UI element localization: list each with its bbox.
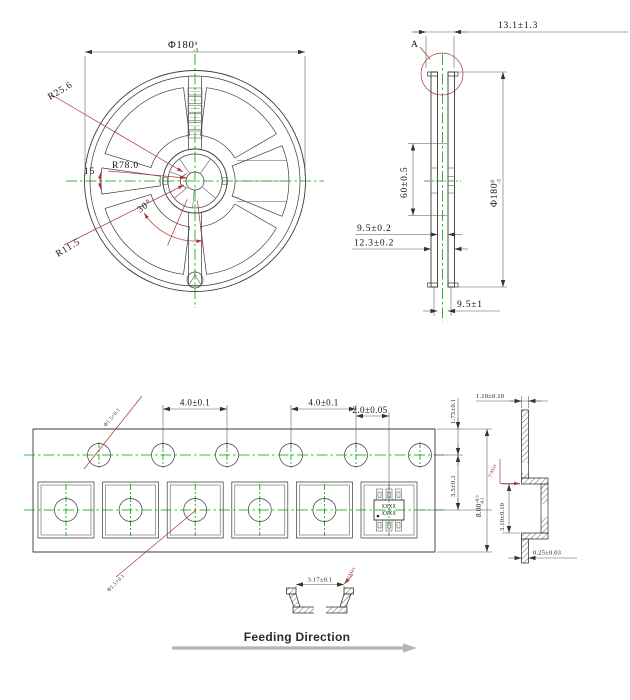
drawing-page: Φ1800-3 R25.6 R78.0 R11.5 15 30°: [0, 0, 630, 700]
reel-flange-right: [448, 72, 455, 287]
pitch-label-b: 4.0±0.1: [308, 398, 338, 408]
hole-to-pocket-label: 2.0±0.05: [352, 405, 387, 415]
feeding-arrow-head: [403, 643, 417, 653]
dim-opening-width: 3.17±0.1: [296, 577, 344, 593]
detail-callout-a: A: [411, 40, 463, 95]
tape-side-section: 1.10±0.10 3.10±0.10 3°Max 0.25±0.03: [476, 393, 577, 563]
pocket-cross-section: 3.17±0.1 3°Max: [287, 566, 358, 614]
inner-gap-label: 9.5±0.2: [357, 224, 392, 234]
overall-width-label: 13.1±1.3: [498, 21, 538, 31]
draft-angle-side-label: 3°Max: [488, 463, 498, 479]
feeding-direction: Feeding Direction: [172, 630, 417, 653]
r78-0-label: R78.0: [112, 161, 139, 171]
reel-side-view: A 13.1±1.3 Φ1800-3 60±0.5 9.5±0.2: [352, 21, 628, 322]
dim-bottom-gap: 9.5±1: [423, 300, 500, 311]
opening-width-label: 3.17±0.1: [308, 577, 333, 584]
angle-15-label: 15: [84, 167, 95, 177]
dim-right-side: 1.75±0.1 3.5±0.1 8.00+0.3-0.1: [420, 398, 492, 552]
tape-width-label: 8.00+0.3-0.1: [475, 495, 485, 517]
tape-top-view: XXXX XXXX 4.0±0.1 4.0±0.1: [24, 396, 492, 593]
r11-5-label: R11.5: [54, 237, 82, 259]
dim-tape-thickness: 0.25±0.03: [508, 550, 577, 559]
dim-pocket-pitch: 4.0±0.1 4.0±0.1: [163, 398, 356, 451]
reel-flange-left: [431, 72, 438, 287]
leader-sprocket-dia: Φ1.5+0.1: [84, 396, 142, 469]
dim-outer-width: 12.3±0.2: [352, 239, 468, 250]
pin1-dot: [377, 515, 380, 518]
reel-front-view: Φ1800-3 R25.6 R78.0 R11.5 15 30°: [46, 40, 324, 308]
reel-diameter-label: Φ1800-3: [168, 40, 198, 54]
pocket-hole-dia-label: Φ1.5+0.1: [106, 573, 126, 593]
draft-angle-pocket-label: 3°Max: [346, 566, 357, 582]
dim-draft-angle-pocket: 3°Max: [344, 566, 357, 584]
hub-width-label: 60±0.5: [400, 167, 410, 198]
carrier-width-label: 1.10±0.10: [476, 393, 504, 400]
tape-outline: [33, 429, 435, 552]
r25-6-label: R25.6: [46, 80, 74, 102]
outer-width-label: 12.3±0.2: [354, 239, 394, 249]
dim-side-diameter: Φ1800-3: [458, 72, 507, 287]
side-diameter-label: Φ1800-3: [490, 179, 503, 207]
edge-to-hole-label: 1.75±0.1: [450, 399, 457, 424]
dim-hub-width: 60±0.5: [400, 144, 447, 216]
angle-30-label: 30°: [135, 197, 154, 215]
dim-inner-gap: 9.5±0.2: [355, 224, 462, 235]
tape-reel-drawing: Φ1800-3 R25.6 R78.0 R11.5 15 30°: [0, 0, 630, 700]
hole-to-pocket-v-label: 3.5±0.1: [450, 475, 457, 497]
dim-angle-15: 15: [84, 167, 101, 189]
leader-r11-5: R11.5: [54, 185, 184, 260]
dim-overall-width: 13.1±1.3: [412, 21, 628, 68]
dim-hole-to-pocket: 2.0±0.05: [352, 405, 389, 497]
tape-thickness-label: 0.25±0.03: [533, 550, 561, 557]
leader-r25-6: R25.6: [46, 80, 183, 172]
dim-angle-30: 30°: [135, 197, 203, 250]
pitch-label-a: 4.0±0.1: [180, 398, 210, 408]
feeding-direction-label: Feeding Direction: [244, 630, 350, 644]
detail-a-label: A: [411, 40, 419, 50]
dim-carrier-width: 1.10±0.10: [476, 393, 548, 408]
dim-draft-angle-side: 3°Max: [488, 459, 520, 484]
bottom-gap-label: 9.5±1: [457, 300, 483, 310]
pocket-depth-label: 3.10±0.10: [499, 503, 506, 531]
dim-pocket-depth: 3.10±0.10: [499, 484, 520, 533]
